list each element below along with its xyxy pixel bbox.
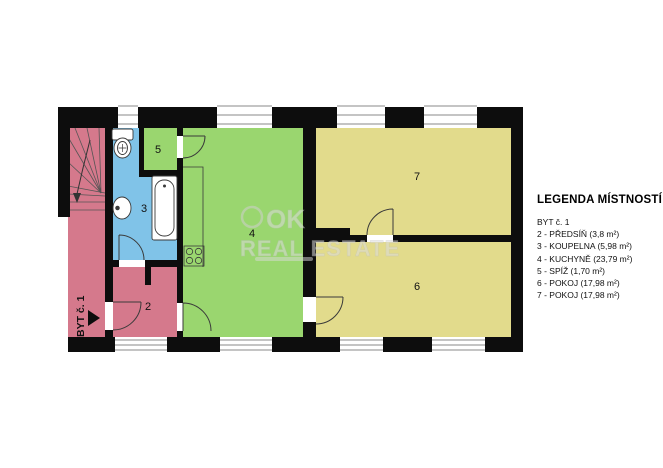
legend-item: 7 - POKOJ (17,98 m²) [537, 289, 663, 301]
room-label-hall: 2 [145, 301, 151, 313]
window [424, 103, 477, 128]
legend-item: 5 - SPÍŽ (1,70 m²) [537, 265, 663, 277]
window [115, 337, 167, 353]
legend-item: BYT č. 1 [537, 216, 663, 228]
watermark-tagline [255, 257, 313, 261]
room-label-room6: 6 [414, 281, 420, 293]
legend-item: 3 - KOUPELNA (5,98 m²) [537, 240, 663, 252]
legend-item: 4 - KUCHYNĚ (23,79 m²) [537, 253, 663, 265]
window [337, 103, 385, 128]
watermark-logo-text: OK [266, 204, 305, 234]
window [118, 103, 138, 128]
unit-label: BYT č. 1 [75, 295, 87, 337]
legend-title: LEGENDA MÍSTNOSTÍ [537, 194, 663, 206]
room-label-bathroom: 3 [141, 203, 147, 215]
legend-item: 6 - POKOJ (17,98 m²) [537, 277, 663, 289]
legend: LEGENDA MÍSTNOSTÍ BYT č. 1 2 - PŘEDSÍŇ (… [537, 194, 663, 301]
legend-list: BYT č. 1 2 - PŘEDSÍŇ (3,8 m²) 3 - KOUPEL… [537, 216, 663, 301]
bathtub-fixture [152, 176, 177, 240]
toilet-fixture [112, 129, 133, 158]
floorplan-image: OK REAL ESTATE 2 3 4 5 6 7 BYT č. 1 LEGE… [0, 0, 663, 468]
window [432, 337, 485, 353]
window [340, 337, 383, 353]
room-label-kitchen: 4 [249, 228, 255, 240]
room-label-room7: 7 [414, 171, 420, 183]
sink-fixture [113, 197, 131, 219]
room-label-pantry: 5 [155, 144, 161, 156]
legend-item: 2 - PŘEDSÍŇ (3,8 m²) [537, 228, 663, 240]
window [217, 103, 272, 128]
window [220, 337, 272, 353]
